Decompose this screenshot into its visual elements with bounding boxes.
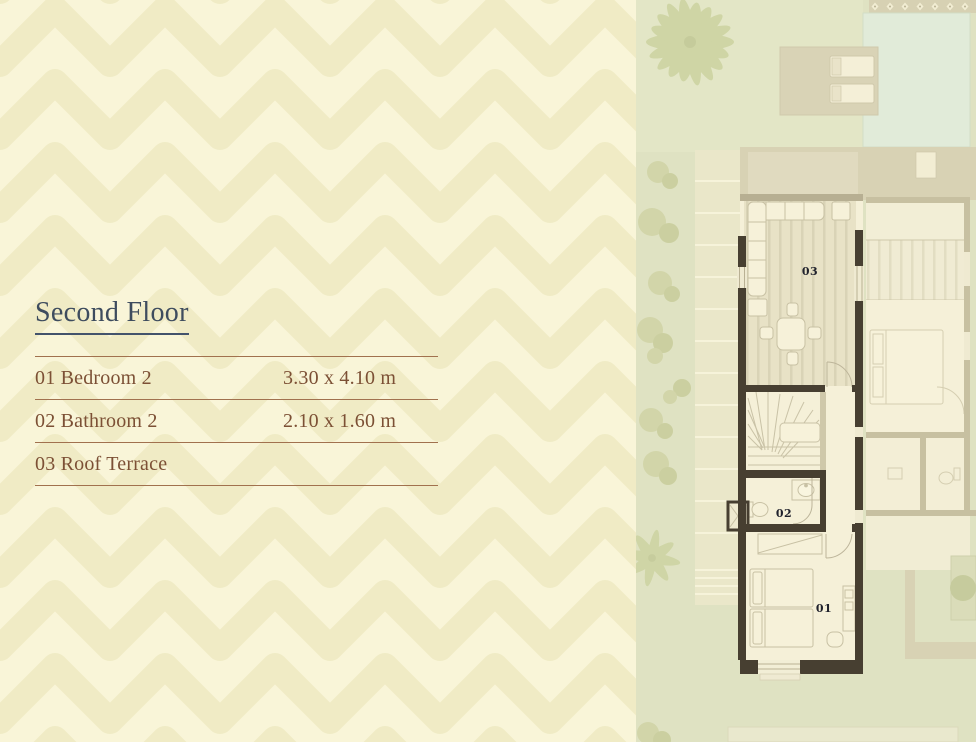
- lounger: [830, 56, 874, 77]
- room-label: 01 Bedroom 2: [35, 367, 283, 390]
- planter-bush: [950, 575, 976, 601]
- lounger: [830, 84, 874, 103]
- neighbor-terrace-deck: [866, 240, 970, 300]
- stair-partition: [820, 392, 826, 470]
- label-bedroom: 01: [816, 602, 832, 615]
- room-dimensions: 2.10 x 1.60 m: [283, 410, 438, 433]
- info-panel: Second Floor 01 Bedroom 2 3.30 x 4.10 m …: [35, 297, 438, 486]
- room-roof-terrace: [744, 200, 856, 387]
- room-dimensions: 3.30 x 4.10 m: [283, 367, 438, 390]
- room-legend: 01 Bedroom 2 3.30 x 4.10 m 02 Bathroom 2…: [35, 356, 438, 486]
- room-label: 02 Bathroom 2: [35, 410, 283, 433]
- armchair: [827, 632, 843, 647]
- legend-row-bathroom: 02 Bathroom 2 2.10 x 1.60 m: [35, 400, 438, 443]
- page-title: Second Floor: [35, 297, 189, 335]
- label-bathroom: 02: [776, 507, 792, 520]
- swimming-pool: [863, 13, 970, 147]
- unit: [728, 194, 864, 680]
- sun-deck: [780, 47, 878, 115]
- floor-plan: 03 02 01: [636, 0, 976, 742]
- label-roof-terrace: 03: [802, 265, 818, 278]
- garden-path: [695, 150, 740, 605]
- toilet: [752, 503, 768, 517]
- legend-row-bedroom: 01 Bedroom 2 3.30 x 4.10 m: [35, 357, 438, 400]
- room-label: 03 Roof Terrace: [35, 453, 283, 476]
- bed: [750, 569, 813, 607]
- bed: [750, 609, 813, 647]
- pool-area: [863, 0, 976, 147]
- legend-row-terrace: 03 Roof Terrace: [35, 443, 438, 486]
- neighbor-bed: [870, 330, 943, 404]
